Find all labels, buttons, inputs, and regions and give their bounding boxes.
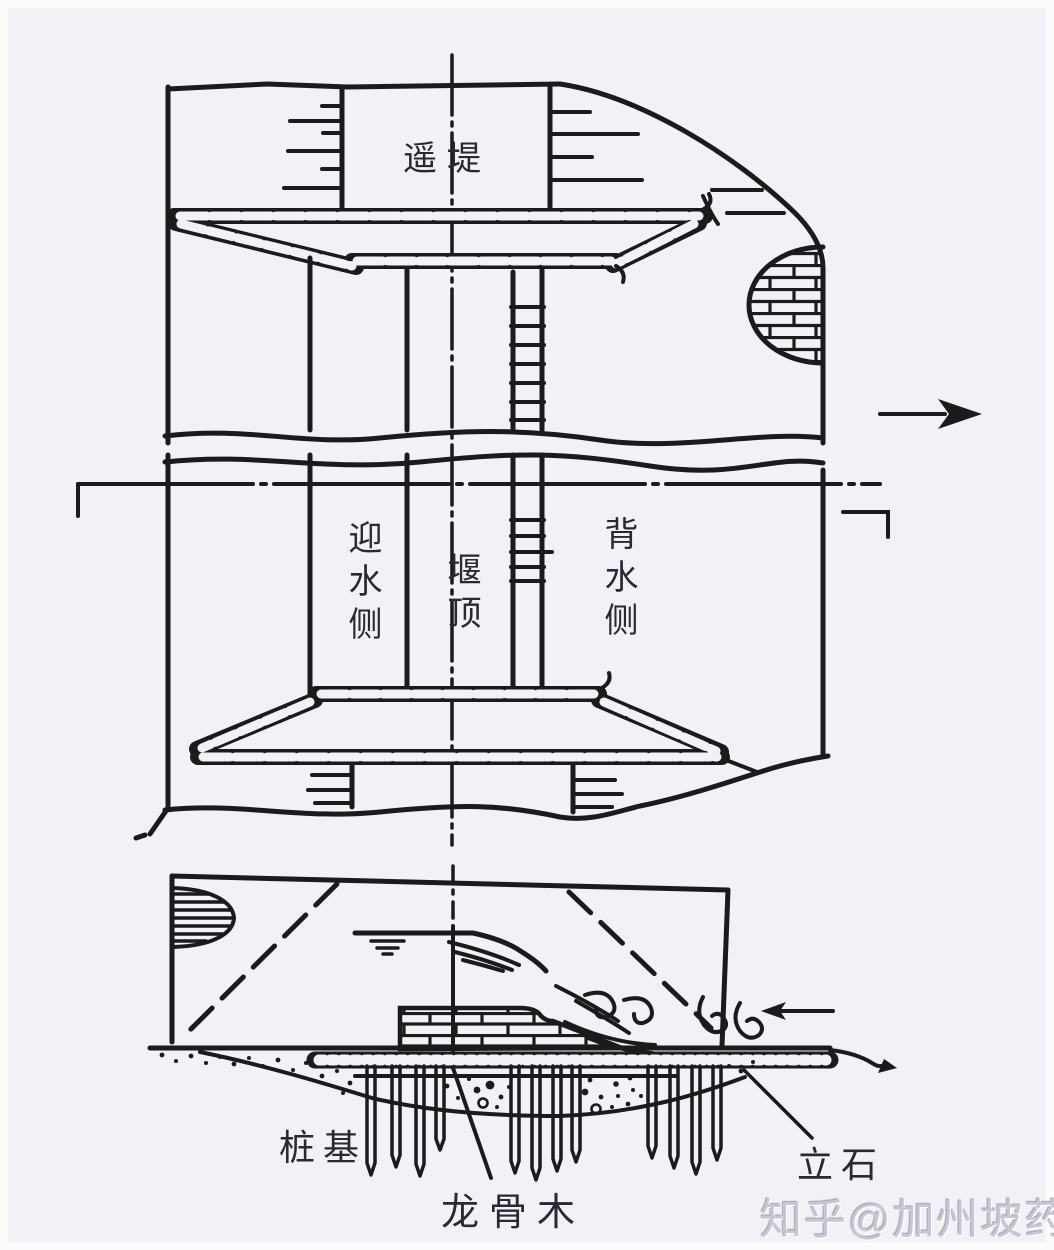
fascine-lens xyxy=(172,888,234,947)
top-dike-ticks-right xyxy=(550,112,642,180)
watermark-text: 知乎@加州坡药书房 xyxy=(760,1186,1054,1247)
collar-toe-wedge xyxy=(726,760,757,772)
upstream-slope-dashed xyxy=(188,884,337,1032)
keel-wood-leader xyxy=(453,1068,491,1178)
label-standing-stone: 立石 xyxy=(797,1136,885,1188)
lower-dike-bottom-wavy xyxy=(165,756,828,818)
diagram-page: 遥堤 迎水侧 堰顶 背水侧 桩基 龙骨木 立石 知乎@加州坡药书房 xyxy=(0,0,1054,1250)
standing-stone-leader xyxy=(744,1070,812,1138)
section-bracket-right xyxy=(843,512,888,537)
masonry-crest-block xyxy=(400,1008,622,1049)
lower-stone-collar xyxy=(197,673,722,757)
upper-stone-collar xyxy=(174,194,710,282)
break-line-upper xyxy=(165,432,823,444)
label-top-dike: 遥堤 xyxy=(403,131,491,180)
toe-wave-curls xyxy=(699,997,762,1038)
section-top-edge xyxy=(172,876,728,890)
tailwater-arrow-icon xyxy=(761,1002,833,1020)
label-keel-wood: 龙骨木 xyxy=(441,1181,585,1236)
label-upstream-side: 迎水侧 xyxy=(337,520,386,649)
label-downstream-side: 背水侧 xyxy=(593,516,642,645)
break-line-lower xyxy=(165,455,823,470)
bank-masonry-arc xyxy=(749,247,823,363)
top-edge xyxy=(168,84,560,89)
pile-foundation xyxy=(367,1066,721,1180)
crest-edge-ticks xyxy=(511,307,552,581)
section-view xyxy=(150,866,897,1180)
label-weir-crest: 堰顶 xyxy=(436,552,485,638)
flow-direction-arrow-icon xyxy=(880,399,982,429)
top-dike-ticks-left xyxy=(284,106,342,188)
diagram-canvas xyxy=(0,0,1054,1250)
plan-view xyxy=(78,55,982,845)
label-pile-foundation: 桩基 xyxy=(279,1119,367,1171)
